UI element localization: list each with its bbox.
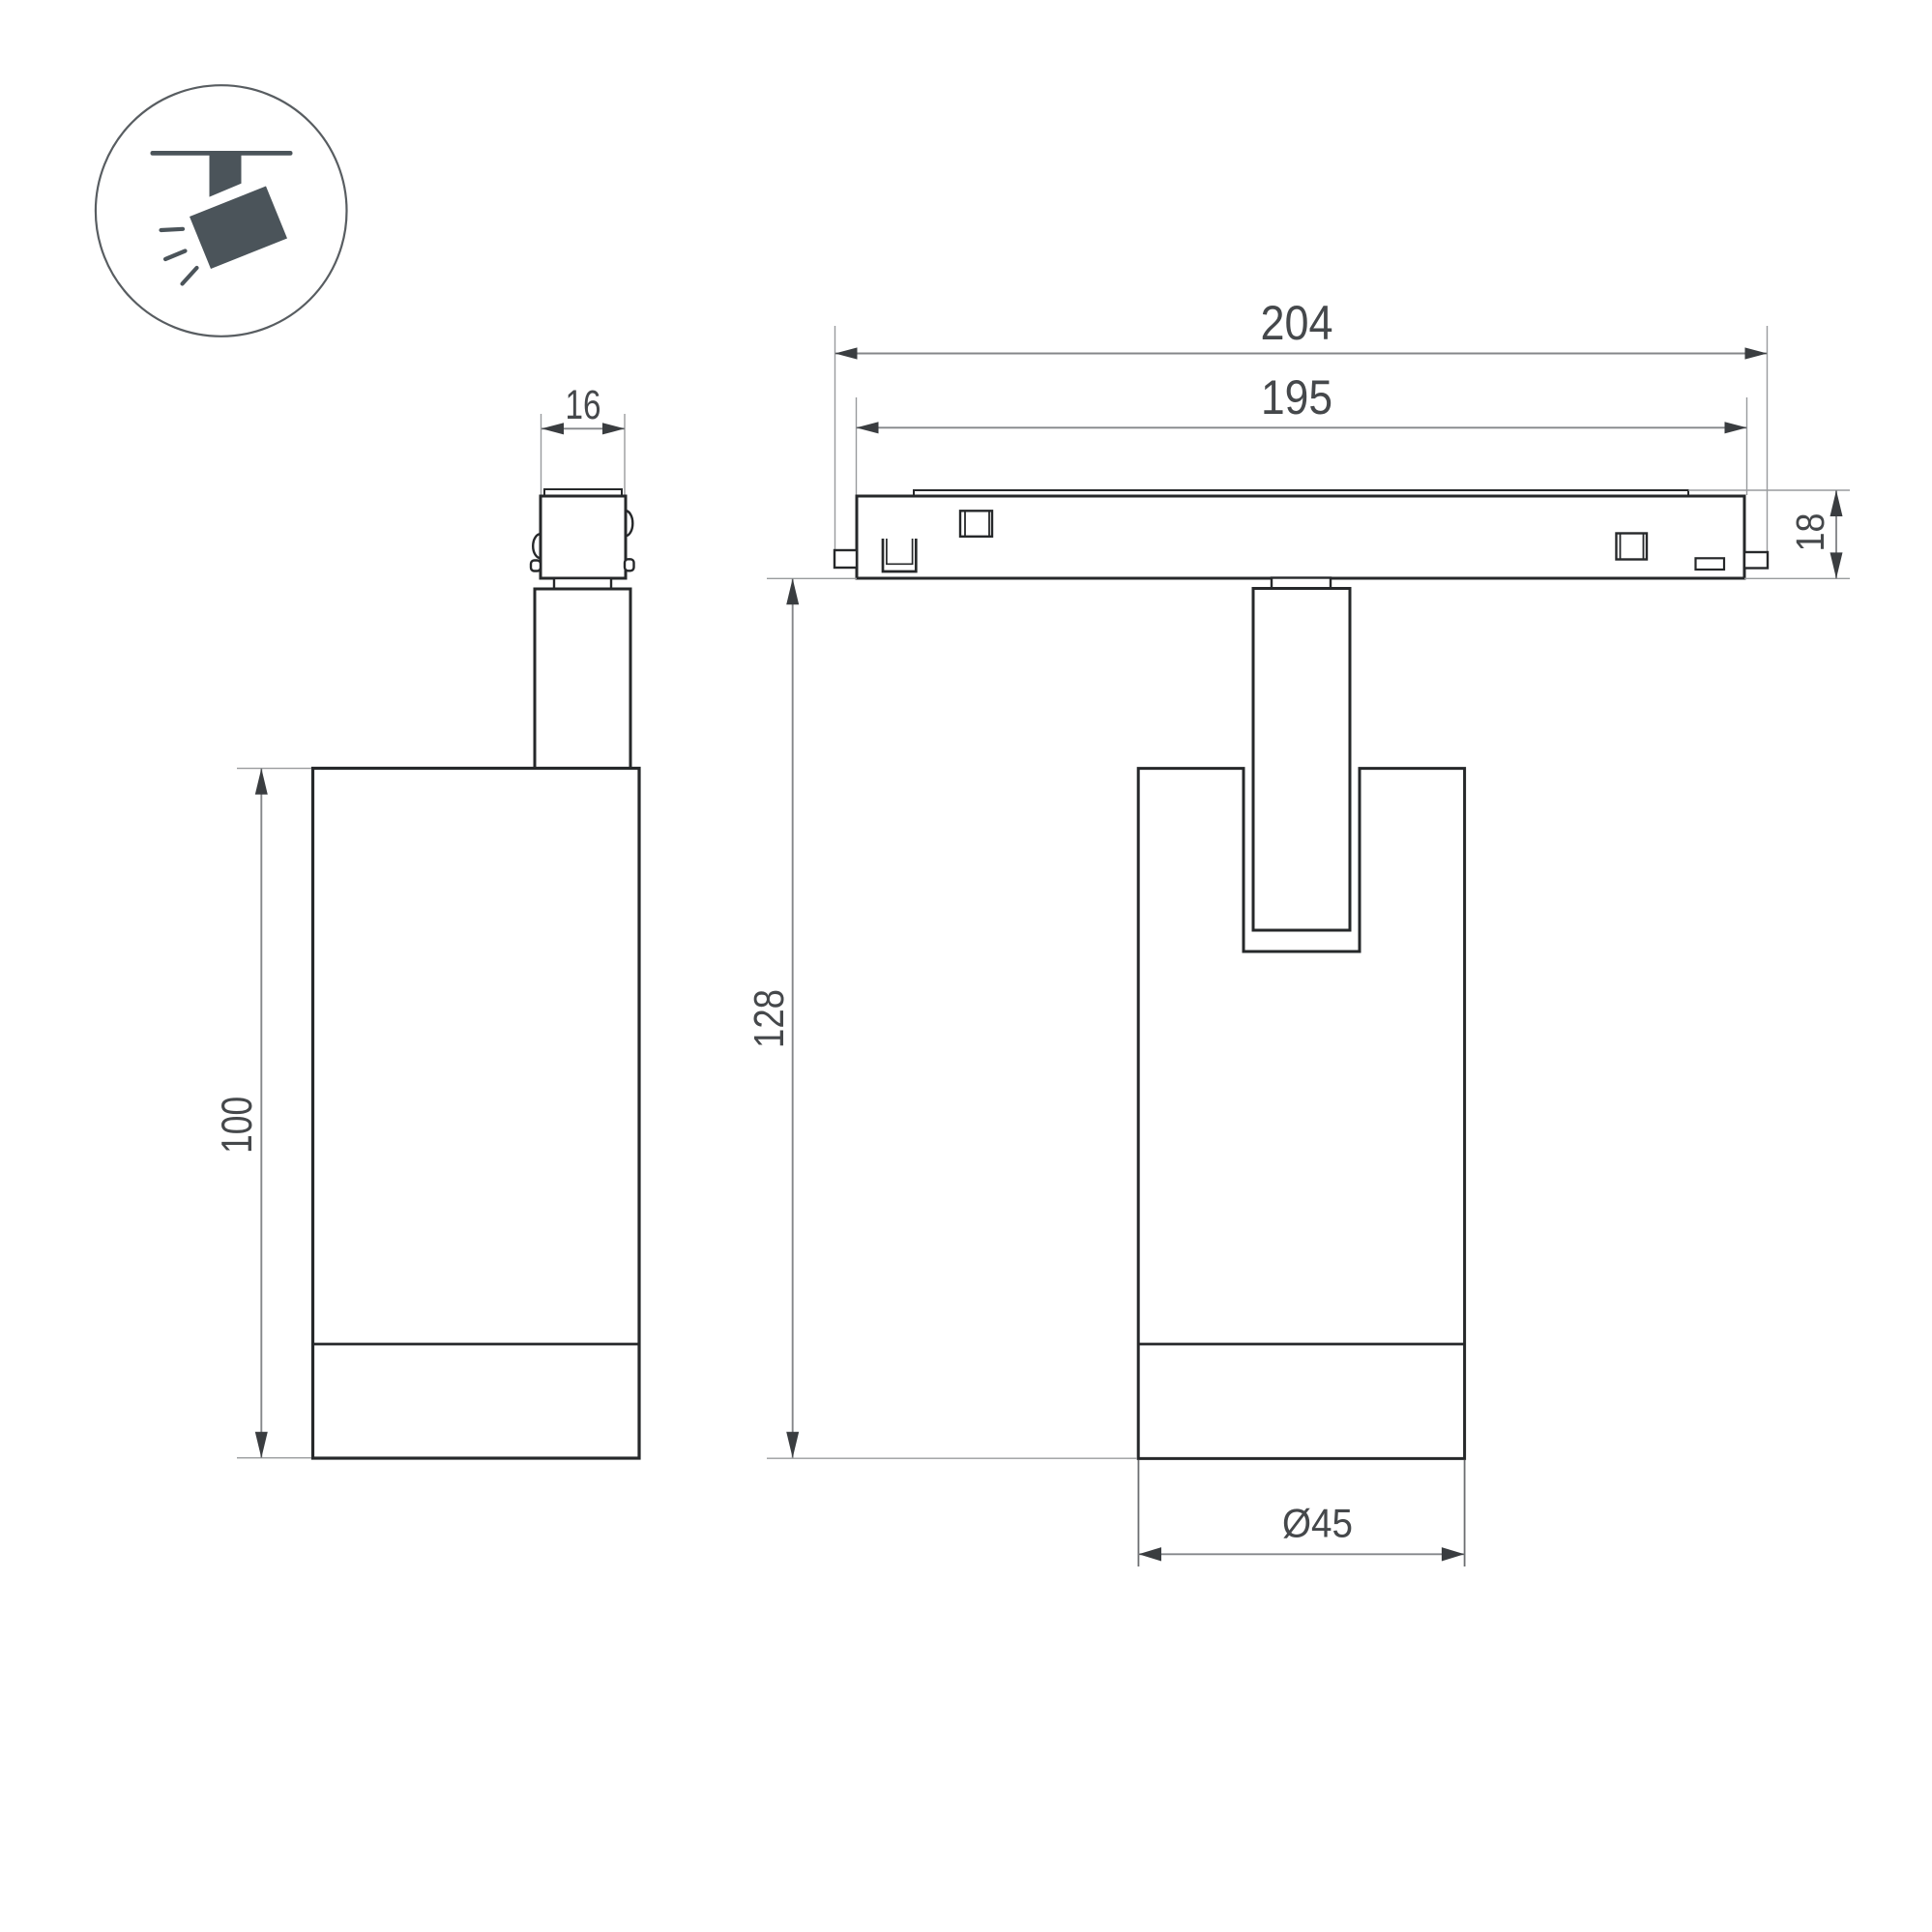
- svg-text:195: 195: [1261, 369, 1332, 424]
- svg-text:204: 204: [1261, 295, 1333, 350]
- svg-text:128: 128: [746, 989, 793, 1048]
- svg-text:18: 18: [1788, 513, 1832, 552]
- svg-text:16: 16: [566, 383, 601, 428]
- svg-text:Ø45: Ø45: [1282, 1500, 1353, 1545]
- svg-text:100: 100: [214, 1097, 261, 1154]
